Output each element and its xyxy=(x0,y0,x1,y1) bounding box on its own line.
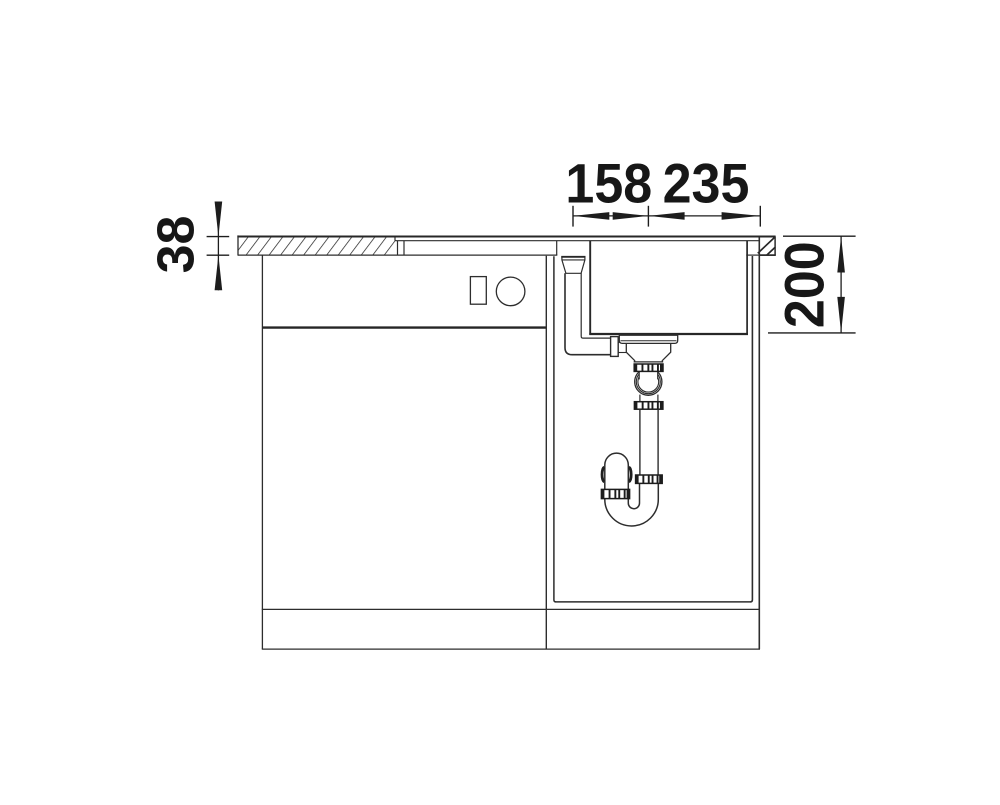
svg-text:235: 235 xyxy=(663,153,750,215)
svg-text:38: 38 xyxy=(148,216,206,274)
svg-text:158: 158 xyxy=(565,153,652,215)
svg-text:200: 200 xyxy=(774,241,836,328)
